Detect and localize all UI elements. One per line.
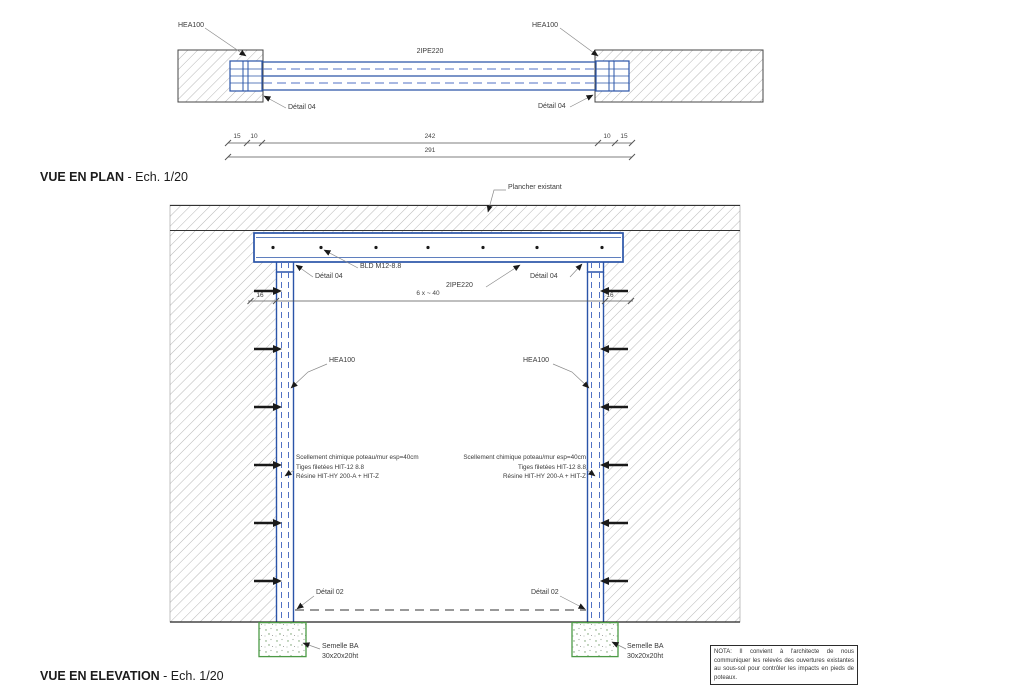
footing-label-right-line2: 30x20x20ht (627, 652, 664, 662)
dim-242: 242 (412, 133, 448, 141)
footing-label-left-line1: Semelle BA (322, 642, 359, 652)
footing-label-right: Semelle BA 30x20x20ht (627, 642, 664, 662)
plan-view-linework (178, 28, 763, 160)
plancher-existant-label: Plancher existant (508, 184, 562, 192)
elevation-view-linework (170, 190, 740, 657)
plan-beam (232, 62, 629, 90)
drawing-sheet: HEA100 HEA100 2IPE220 Détail 04 Détail 0… (0, 0, 1024, 695)
anchor-note-right-line1: Scellement chimique poteau/mur esp=40cm (445, 453, 586, 463)
beam-label-plan: 2IPE220 (408, 48, 452, 56)
dim-10-right: 10 (600, 133, 614, 141)
detail04-label-plan-left: Détail 04 (288, 104, 316, 112)
anchor-note-right-line2: Tiges filetées HIT-12 8.8 (445, 463, 586, 473)
detail02-label-right: Détail 02 (531, 589, 559, 597)
anchor-note-right-line3: Résine HIT-HY 200-A + HIT-Z (445, 472, 586, 482)
anchor-note-left-line1: Scellement chimique poteau/mur esp=40cm (296, 453, 419, 463)
bolt-label: BLD M12-8.8 (360, 263, 401, 271)
detail04-label-elev-right: Détail 04 (530, 273, 558, 281)
footing-label-left-line2: 30x20x20ht (322, 652, 359, 662)
plan-column-left (230, 61, 262, 91)
footing-right (572, 623, 618, 657)
hea100-label-plan-right: HEA100 (532, 22, 558, 30)
wall-opening (276, 262, 604, 622)
dim-15-left: 15 (230, 133, 244, 141)
detail04-label-elev-left: Détail 04 (315, 273, 343, 281)
anchor-note-left-line3: Résine HIT-HY 200-A + HIT-Z (296, 472, 419, 482)
beam-label-elev: 2IPE220 (446, 282, 473, 290)
embed-dim-right: 16 (604, 292, 616, 300)
plan-view-title: VUE EN PLAN - Ech. 1/20 (40, 170, 188, 184)
hea100-label-elev-right: HEA100 (523, 357, 549, 365)
elevation-view-title: VUE EN ELEVATION - Ech. 1/20 (40, 669, 224, 683)
cad-linework (0, 0, 1024, 695)
embed-dim-left: 16 (254, 292, 266, 300)
hea100-label-elev-left: HEA100 (329, 357, 355, 365)
plan-column-right (596, 61, 629, 91)
detail02-label-left: Détail 02 (316, 589, 344, 597)
footing-label-left: Semelle BA 30x20x20ht (322, 642, 359, 662)
elevation-view-title-text: VUE EN ELEVATION (40, 669, 160, 683)
dim-15-right: 15 (617, 133, 631, 141)
nota-box: NOTA: Il convient à l'architecte de nous… (710, 645, 858, 685)
detail04-label-plan-right: Détail 04 (538, 103, 566, 111)
plan-view-title-text: VUE EN PLAN (40, 170, 124, 184)
dim-10-left: 10 (247, 133, 261, 141)
bolt-spacing-dim: 6 x ~ 40 (406, 290, 450, 298)
hea100-label-plan-left: HEA100 (178, 22, 204, 30)
dim-291-total: 291 (412, 147, 448, 155)
elevation-view-scale: - Ech. 1/20 (160, 669, 224, 683)
footing-left (259, 623, 306, 657)
footing-label-right-line1: Semelle BA (627, 642, 664, 652)
elevation-beam (254, 233, 623, 262)
anchor-note-right: Scellement chimique poteau/mur esp=40cm … (445, 453, 586, 482)
plan-view-scale: - Ech. 1/20 (124, 170, 188, 184)
anchor-note-left: Scellement chimique poteau/mur esp=40cm … (296, 453, 419, 482)
anchor-note-left-line2: Tiges filetées HIT-12 8.8 (296, 463, 419, 473)
